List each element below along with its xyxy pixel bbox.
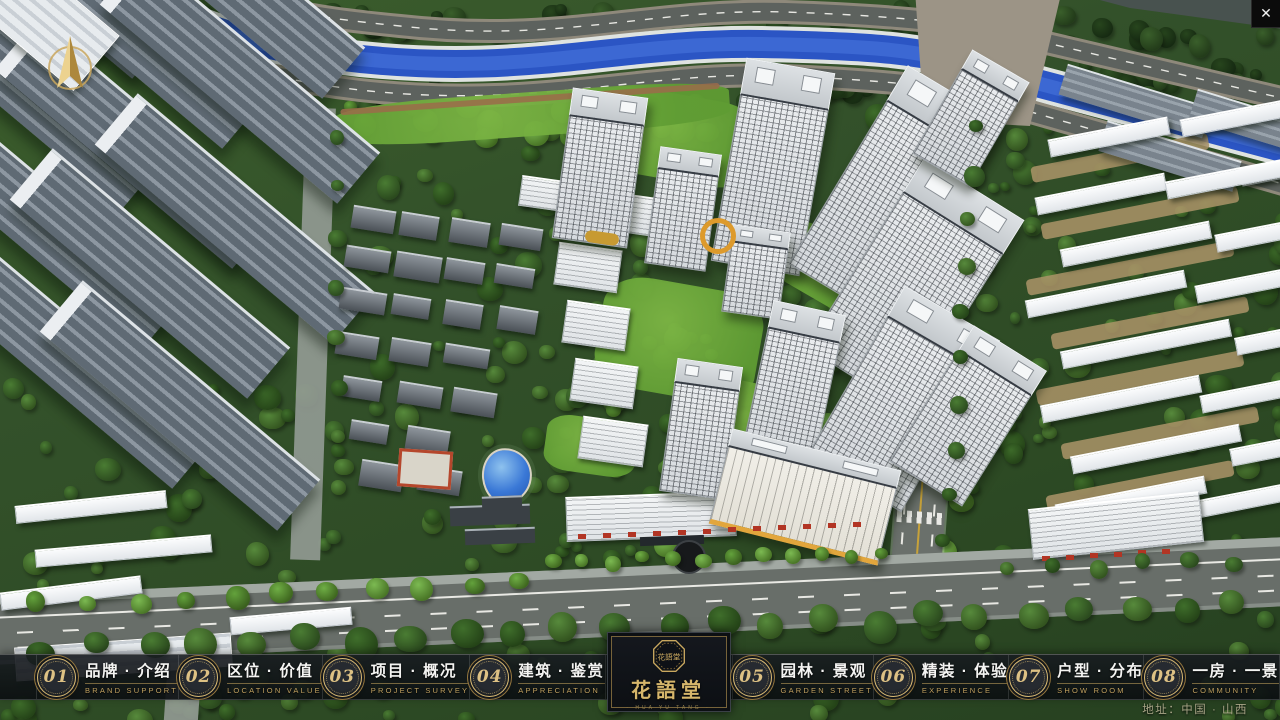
sales-presentation-window: ✕ 01 品牌 · 介绍 BRAND SUPPORT 02 区位 · 价值 LO…: [0, 0, 1280, 720]
nav-label-en: BRAND SUPPORT: [85, 683, 178, 695]
tree: [961, 604, 988, 629]
tree: [964, 166, 985, 187]
nav-label-en: PROJECT SURVEY: [371, 683, 469, 695]
nav-number-badge: 07: [1009, 658, 1048, 697]
nav-item-floorplan[interactable]: 07 户型 · 分布 SHOW ROOM: [1008, 655, 1143, 699]
tree: [875, 548, 888, 559]
tree: [269, 582, 293, 603]
nav-label-en: COMMUNITY: [1192, 683, 1278, 695]
nav-item-brand[interactable]: 01 品牌 · 介绍 BRAND SUPPORT: [36, 655, 178, 699]
tree: [635, 551, 649, 562]
tree: [969, 120, 984, 132]
north-compass-icon: [40, 28, 100, 100]
tree: [26, 591, 45, 612]
map-foreground-trees: [0, 0, 1280, 720]
tree: [545, 554, 562, 568]
tree: [327, 330, 344, 345]
tree: [331, 180, 344, 191]
tree: [665, 551, 681, 565]
project-address: 地址：中国 · 山西: [1142, 701, 1248, 717]
nav-label-en: APPRECIATION: [518, 683, 604, 695]
tree: [960, 212, 975, 226]
nav-label-en: EXPERIENCE: [922, 683, 1008, 695]
tree: [864, 611, 897, 644]
tree: [290, 623, 320, 650]
tree: [575, 554, 588, 567]
nav-number-badge: 05: [733, 658, 772, 697]
tree: [226, 586, 249, 610]
tree: [500, 621, 524, 646]
tree: [84, 632, 108, 653]
tree: [958, 258, 976, 275]
tree: [1045, 558, 1060, 572]
tree: [757, 613, 782, 639]
nav-label-en: GARDEN STREET: [781, 683, 873, 695]
tree: [755, 547, 772, 562]
tree: [1065, 597, 1093, 621]
nav-number-badge: 02: [179, 658, 218, 697]
nav-label-zh: 精装 · 体验: [922, 659, 1008, 681]
nav-number-badge: 01: [37, 658, 76, 697]
tree: [725, 549, 742, 565]
tree: [695, 554, 712, 569]
bottom-menu-bar: 01 品牌 · 介绍 BRAND SUPPORT 02 区位 · 价值 LOCA…: [0, 654, 1280, 700]
nav-number-badge: 03: [323, 658, 362, 697]
tree: [942, 488, 957, 501]
nav-label-zh: 区位 · 价值: [227, 659, 313, 681]
tree: [953, 350, 968, 364]
nav-label-en: LOCATION VALUE: [227, 683, 322, 695]
tree: [1219, 590, 1244, 614]
tree: [131, 594, 152, 614]
tree: [1180, 552, 1199, 568]
svg-text:花語堂: 花語堂: [657, 651, 680, 661]
tree: [366, 578, 389, 599]
project-name-caption: · HUA YU TANG ·: [626, 705, 710, 711]
nav-item-community[interactable]: 08 一房 · 一景 COMMUNITY: [1143, 655, 1278, 699]
tree: [451, 619, 484, 648]
tree: [952, 304, 969, 319]
tree: [1123, 597, 1152, 621]
nav-item-location[interactable]: 02 区位 · 价值 LOCATION VALUE: [178, 655, 322, 699]
tree: [605, 556, 621, 572]
nav-number-badge: 06: [874, 658, 913, 697]
nav-item-architecture[interactable]: 04 建筑 · 鉴赏 APPRECIATION: [469, 655, 604, 699]
tree: [1090, 560, 1108, 579]
nav-label-zh: 一房 · 一景: [1192, 659, 1278, 681]
tree: [815, 547, 829, 561]
tree: [935, 534, 950, 547]
tree: [708, 606, 740, 635]
tree: [950, 396, 968, 414]
tree: [465, 578, 485, 594]
tree: [410, 577, 433, 601]
tree: [785, 548, 801, 564]
project-name: 花語堂: [631, 674, 706, 703]
tree: [330, 130, 344, 145]
tree: [331, 480, 346, 495]
project-logo[interactable]: 花語堂 花語堂 · HUA YU TANG ·: [607, 632, 731, 712]
nav-label-zh: 建筑 · 鉴赏: [518, 659, 604, 681]
close-icon: ✕: [1260, 5, 1272, 21]
tree: [394, 626, 427, 652]
nav-label-zh: 项目 · 概况: [371, 659, 457, 681]
tree: [809, 604, 838, 632]
logo-slot: 花語堂 花語堂 · HUA YU TANG ·: [605, 655, 732, 699]
navbar-spacer: [0, 655, 36, 699]
tree: [316, 582, 338, 601]
tree: [328, 230, 347, 247]
tree: [509, 573, 528, 589]
tree: [1225, 557, 1243, 572]
tree: [326, 530, 340, 544]
tree: [845, 550, 858, 564]
tree: [548, 612, 577, 642]
nav-label-zh: 户型 · 分布: [1057, 659, 1143, 681]
nav-label-en: SHOW ROOM: [1057, 683, 1143, 695]
brand-seal-icon: 花語堂: [650, 639, 688, 673]
tree: [1135, 553, 1150, 568]
aerial-site-map[interactable]: [0, 0, 1280, 720]
nav-item-garden[interactable]: 05 园林 · 景观 GARDEN STREET: [732, 655, 873, 699]
nav-number-badge: 08: [1144, 658, 1183, 697]
tree: [1175, 598, 1200, 623]
nav-label-zh: 品牌 · 介绍: [85, 659, 171, 681]
close-button[interactable]: ✕: [1251, 0, 1280, 28]
nav-item-project[interactable]: 03 项目 · 概况 PROJECT SURVEY: [322, 655, 469, 699]
tree: [1019, 603, 1049, 629]
tree: [177, 592, 195, 609]
tree: [913, 600, 943, 625]
tree: [948, 442, 965, 459]
tree: [328, 280, 344, 296]
tree: [331, 380, 348, 396]
nav-label-zh: 园林 · 景观: [781, 659, 867, 681]
tree: [1000, 562, 1014, 575]
tree: [79, 596, 96, 610]
nav-item-interior[interactable]: 06 精装 · 体验 EXPERIENCE: [873, 655, 1008, 699]
nav-number-badge: 04: [470, 658, 509, 697]
tree: [331, 430, 345, 443]
